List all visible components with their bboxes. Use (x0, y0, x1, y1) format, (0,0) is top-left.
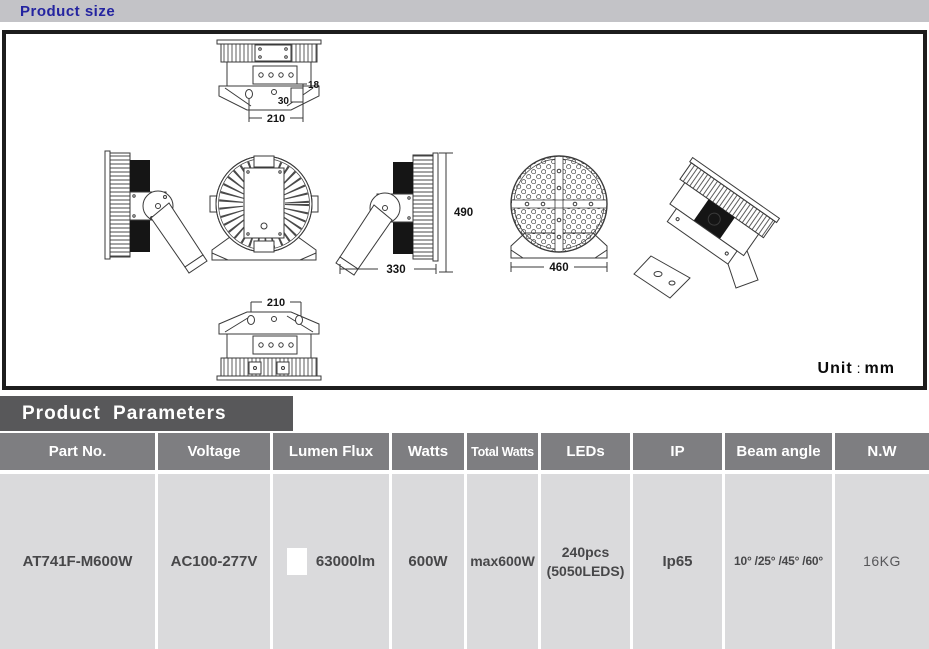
dim-30-label: 30 (278, 96, 290, 107)
lumen-flux-value: 63000lm (316, 552, 375, 572)
cell-leds: 240pcs (5050LEDS) (541, 474, 630, 649)
column-header-total-watts: Total Watts (467, 433, 538, 470)
view-side-dimensioned: 490 330 (336, 153, 473, 276)
cell-ip-rating: Ip65 (633, 474, 722, 649)
color-swatch (287, 548, 307, 575)
column-header-lumen-flux: Lumen Flux (273, 433, 389, 470)
column-header-part-no: Part No. (0, 433, 155, 470)
leds-type: (5050LEDS) (547, 563, 625, 579)
unit-word: Unit (818, 360, 853, 377)
view-top: 18 30 210 (217, 40, 321, 125)
column-header-leds: LEDs (541, 433, 630, 470)
column-header-voltage: Voltage (158, 433, 270, 470)
dim-210-top-label: 210 (267, 113, 285, 125)
view-bottom: 210 (217, 297, 321, 380)
cell-lumen-flux: 63000lm (273, 474, 389, 649)
dim-460-label: 460 (549, 262, 568, 274)
dim-330-label: 330 (386, 264, 405, 276)
cell-net-weight: 16KG (835, 474, 929, 649)
technical-drawing: 18 30 210 (6, 34, 923, 386)
product-size-header: Product size (0, 0, 929, 22)
parameters-table: Part No. Voltage Lumen Flux Watts Total … (0, 433, 929, 649)
dim-490-label: 490 (454, 207, 473, 219)
view-front: 460 (511, 156, 607, 274)
dim-210-bottom-label: 210 (267, 297, 285, 309)
cell-total-watts: max600W (467, 474, 538, 649)
view-back (210, 156, 318, 260)
unit-label: Unit:mm (818, 360, 895, 378)
cell-voltage: AC100-277V (158, 474, 270, 649)
product-parameters-title: Product Parameters (22, 403, 227, 425)
column-header-beam-angle: Beam angle (725, 433, 832, 470)
product-size-drawing-panel: 18 30 210 (2, 30, 927, 390)
cell-watts: 600W (392, 474, 464, 649)
product-datasheet: Product size (0, 0, 929, 649)
product-size-title: Product size (20, 3, 115, 20)
unit-colon: : (853, 360, 865, 376)
cell-beam-angle: 10° /25° /45° /60° (725, 474, 832, 649)
view-side-left (105, 151, 207, 273)
product-parameters-header: Product Parameters (0, 396, 293, 431)
view-isometric (634, 158, 779, 298)
leds-count: 240pcs (562, 544, 609, 560)
dim-18-label: 18 (308, 80, 320, 91)
column-header-watts: Watts (392, 433, 464, 470)
column-header-ip: IP (633, 433, 722, 470)
column-header-net-weight: N.W (835, 433, 929, 470)
cell-part-no: AT741F-M600W (0, 474, 155, 649)
unit-value: mm (865, 360, 895, 377)
